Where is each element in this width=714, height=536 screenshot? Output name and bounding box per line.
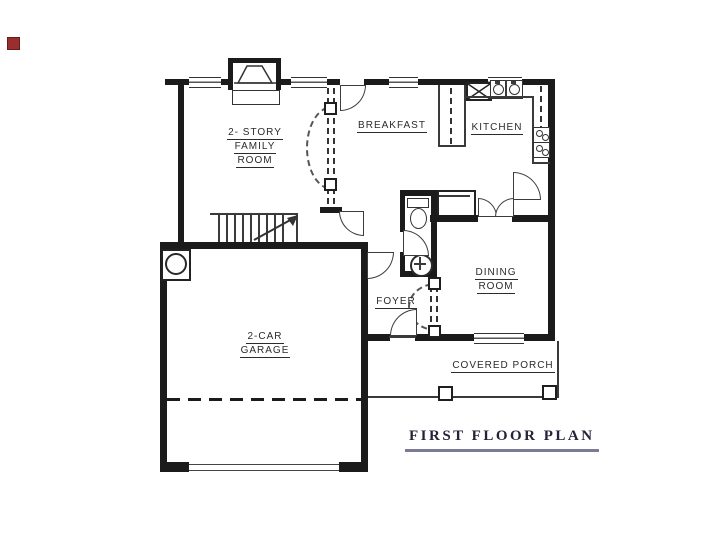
sink-basin xyxy=(493,84,504,95)
garage-door-symbol xyxy=(189,464,339,471)
kitchen-label: KITCHEN xyxy=(464,121,530,135)
pedestal-sink-icon xyxy=(410,254,433,277)
covered-porch-label: COVERED PORCH xyxy=(448,359,558,373)
peninsula-dashed xyxy=(450,88,452,144)
counter-edge xyxy=(466,96,534,98)
archway-post xyxy=(324,102,337,115)
fireplace-wall xyxy=(228,58,233,90)
sink-divider xyxy=(505,80,507,97)
garage-label: 2-CAR GARAGE xyxy=(233,330,297,358)
breakfast-door-swing xyxy=(340,85,366,111)
garage-dashed-line xyxy=(167,398,361,401)
wall xyxy=(178,79,184,242)
window-symbol xyxy=(389,77,418,88)
plan-title: FIRST FLOOR PLAN xyxy=(405,428,599,452)
faucet xyxy=(495,81,500,84)
porch-post xyxy=(438,386,453,401)
family-room-label-line2: FAMILY xyxy=(234,140,277,154)
red-square-marker xyxy=(7,37,20,50)
peninsula-edge xyxy=(438,145,466,147)
archway-post xyxy=(324,178,337,191)
closet-shelf-line xyxy=(439,195,470,197)
stair-tread xyxy=(218,214,220,242)
powder-wall xyxy=(400,196,405,232)
firebox-icon xyxy=(234,62,276,86)
burner xyxy=(542,134,549,141)
stairs-up-arrow xyxy=(246,208,304,244)
garage-entry-door-swing xyxy=(367,252,394,279)
sink-basin xyxy=(509,84,520,95)
foyer-label: FOYER xyxy=(368,295,424,309)
wall xyxy=(512,215,555,222)
stair-tread xyxy=(242,214,244,242)
family-room-label-line3: ROOM xyxy=(236,154,273,168)
family-room-label: 2- STORY FAMILY ROOM xyxy=(213,126,297,168)
window-symbol xyxy=(291,77,327,88)
porch-edge xyxy=(368,396,559,398)
pantry-cabinet-box xyxy=(466,82,492,101)
water-heater-icon xyxy=(165,253,187,275)
floor-plan-canvas: 2- STORY FAMILY ROOM BREAKFAST KITCHEN D… xyxy=(0,0,714,536)
archway-post xyxy=(428,277,441,290)
burner xyxy=(542,149,549,156)
toilet-tank-icon xyxy=(407,198,429,208)
porch-post xyxy=(542,385,557,400)
peninsula-edge xyxy=(464,85,466,147)
stair-tread xyxy=(226,214,228,242)
window-symbol xyxy=(474,333,524,344)
kitchen-door-swing xyxy=(513,172,541,200)
breakfast-label: BREAKFAST xyxy=(350,119,434,133)
garage-wall xyxy=(339,462,368,472)
wall xyxy=(361,334,390,341)
wall xyxy=(548,79,555,341)
front-door-swing xyxy=(390,309,417,336)
sink-detail xyxy=(414,263,426,265)
stair-tread xyxy=(234,214,236,242)
wall xyxy=(430,215,478,222)
powder-door-swing xyxy=(403,230,429,256)
counter-edge xyxy=(532,162,550,164)
window-symbol xyxy=(189,77,221,88)
hall-door-swing xyxy=(339,211,364,236)
door-threshold xyxy=(389,336,416,338)
dining-room-label: DINING ROOM xyxy=(466,266,526,294)
faucet xyxy=(511,81,516,84)
peninsula-edge xyxy=(438,85,440,147)
double-door-right-swing xyxy=(495,198,514,217)
garage-wall xyxy=(160,462,189,472)
fireplace-wall xyxy=(276,58,281,90)
hearth xyxy=(232,90,280,105)
family-room-label-line1: 2- STORY xyxy=(227,126,283,140)
archway-post xyxy=(428,325,441,338)
toilet-bowl-icon xyxy=(410,208,427,229)
